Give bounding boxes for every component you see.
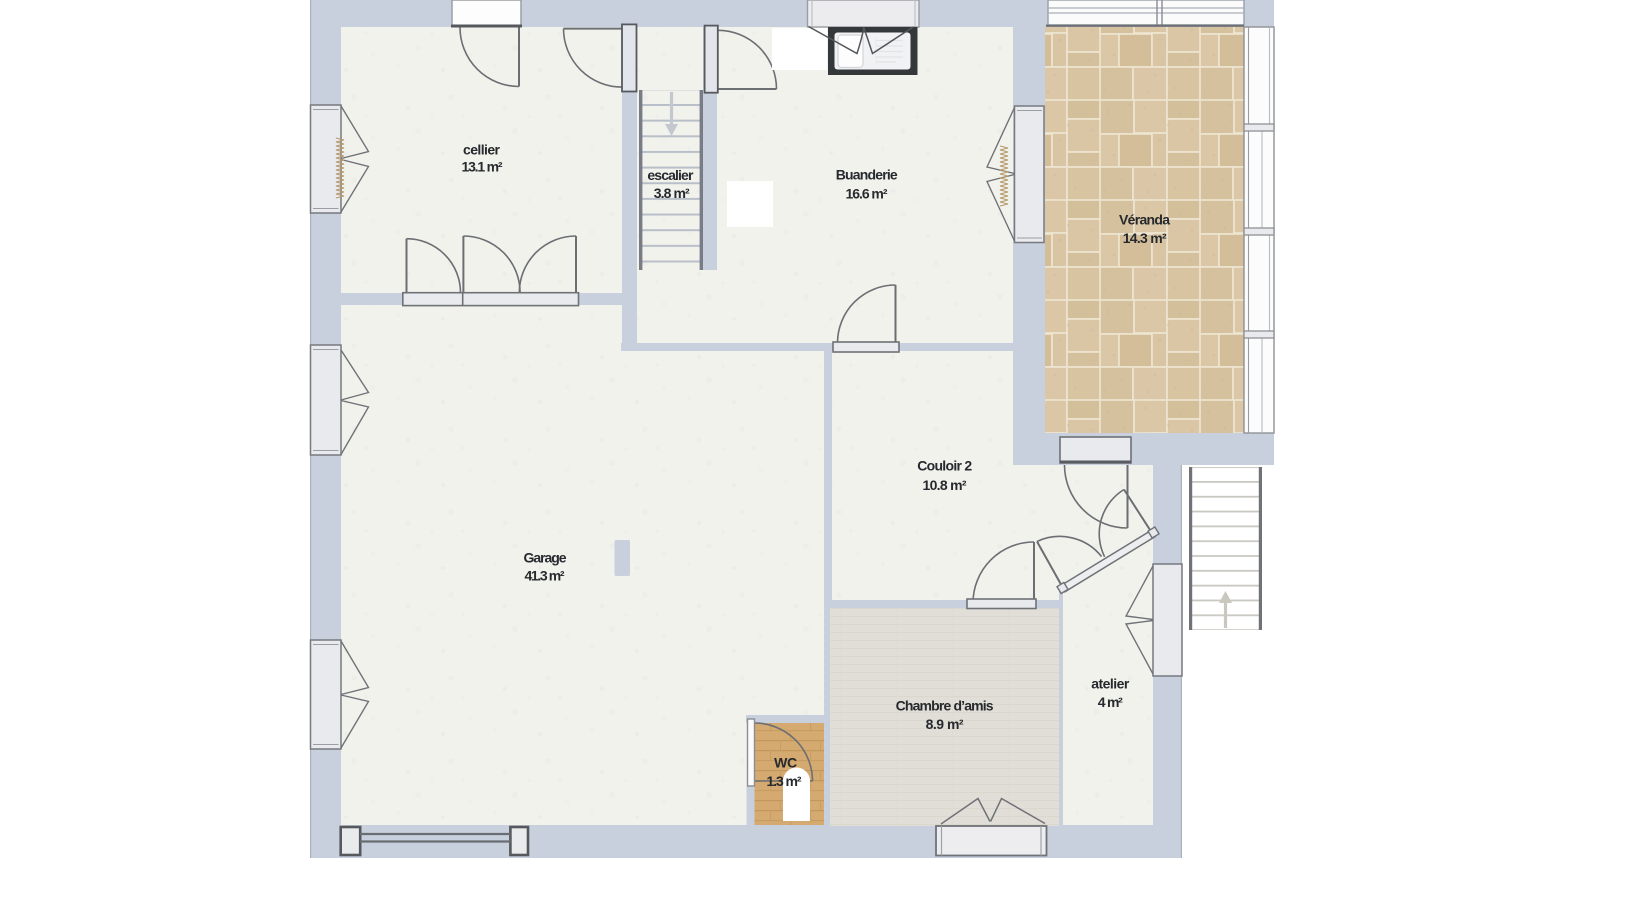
svg-text:Garage: Garage <box>524 550 567 566</box>
svg-text:41.3 m²: 41.3 m² <box>525 567 565 583</box>
svg-text:3.8 m²: 3.8 m² <box>654 185 690 201</box>
svg-text:Chambre d’amis: Chambre d’amis <box>896 698 994 714</box>
svg-text:10.8 m²: 10.8 m² <box>923 477 967 493</box>
svg-text:Véranda: Véranda <box>1119 211 1170 227</box>
svg-text:Buanderie: Buanderie <box>836 167 898 183</box>
svg-text:1.3 m²: 1.3 m² <box>767 773 802 789</box>
svg-text:8.9 m²: 8.9 m² <box>926 716 964 732</box>
svg-text:Couloir 2: Couloir 2 <box>917 458 972 474</box>
svg-text:4 m²: 4 m² <box>1098 694 1123 710</box>
svg-text:escalier: escalier <box>647 167 694 183</box>
svg-text:WC: WC <box>774 755 797 771</box>
svg-text:14.3 m²: 14.3 m² <box>1123 230 1167 246</box>
svg-text:13.1 m²: 13.1 m² <box>462 159 503 175</box>
svg-text:atelier: atelier <box>1091 676 1130 692</box>
svg-text:cellier: cellier <box>463 141 501 157</box>
svg-text:16.6 m²: 16.6 m² <box>846 186 888 202</box>
